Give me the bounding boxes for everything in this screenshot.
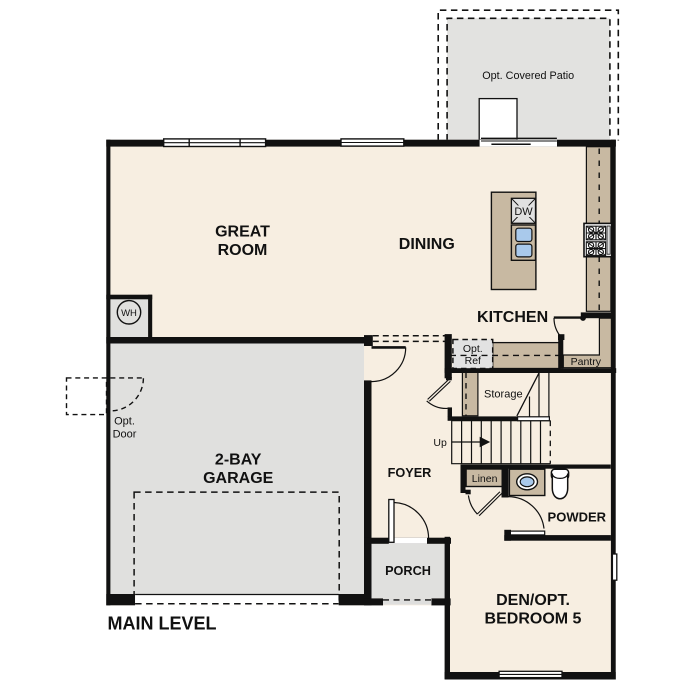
svg-text:BEDROOM 5: BEDROOM 5 [485,611,582,628]
svg-text:Linen: Linen [472,473,498,485]
svg-text:DW: DW [514,206,533,218]
svg-text:PORCH: PORCH [385,564,431,578]
svg-text:Ref: Ref [465,355,481,367]
svg-text:Opt.: Opt. [114,416,135,428]
svg-text:2-BAY: 2-BAY [215,452,262,469]
svg-text:Pantry: Pantry [571,356,602,368]
svg-text:FOYER: FOYER [388,466,432,480]
svg-text:DEN/OPT.: DEN/OPT. [496,592,570,609]
svg-text:GREAT: GREAT [215,223,270,240]
svg-text:Opt. Covered Patio: Opt. Covered Patio [482,70,574,82]
svg-text:GARAGE: GARAGE [203,470,274,487]
svg-text:Door: Door [113,429,137,441]
svg-text:WH: WH [121,308,137,319]
svg-text:ROOM: ROOM [218,242,268,259]
svg-text:KITCHEN: KITCHEN [477,309,548,326]
svg-text:MAIN LEVEL: MAIN LEVEL [108,614,217,634]
svg-text:Storage: Storage [484,388,523,400]
svg-text:POWDER: POWDER [548,510,607,525]
svg-text:Opt.: Opt. [463,343,483,355]
svg-text:Up: Up [433,437,447,449]
svg-text:DINING: DINING [399,236,455,253]
